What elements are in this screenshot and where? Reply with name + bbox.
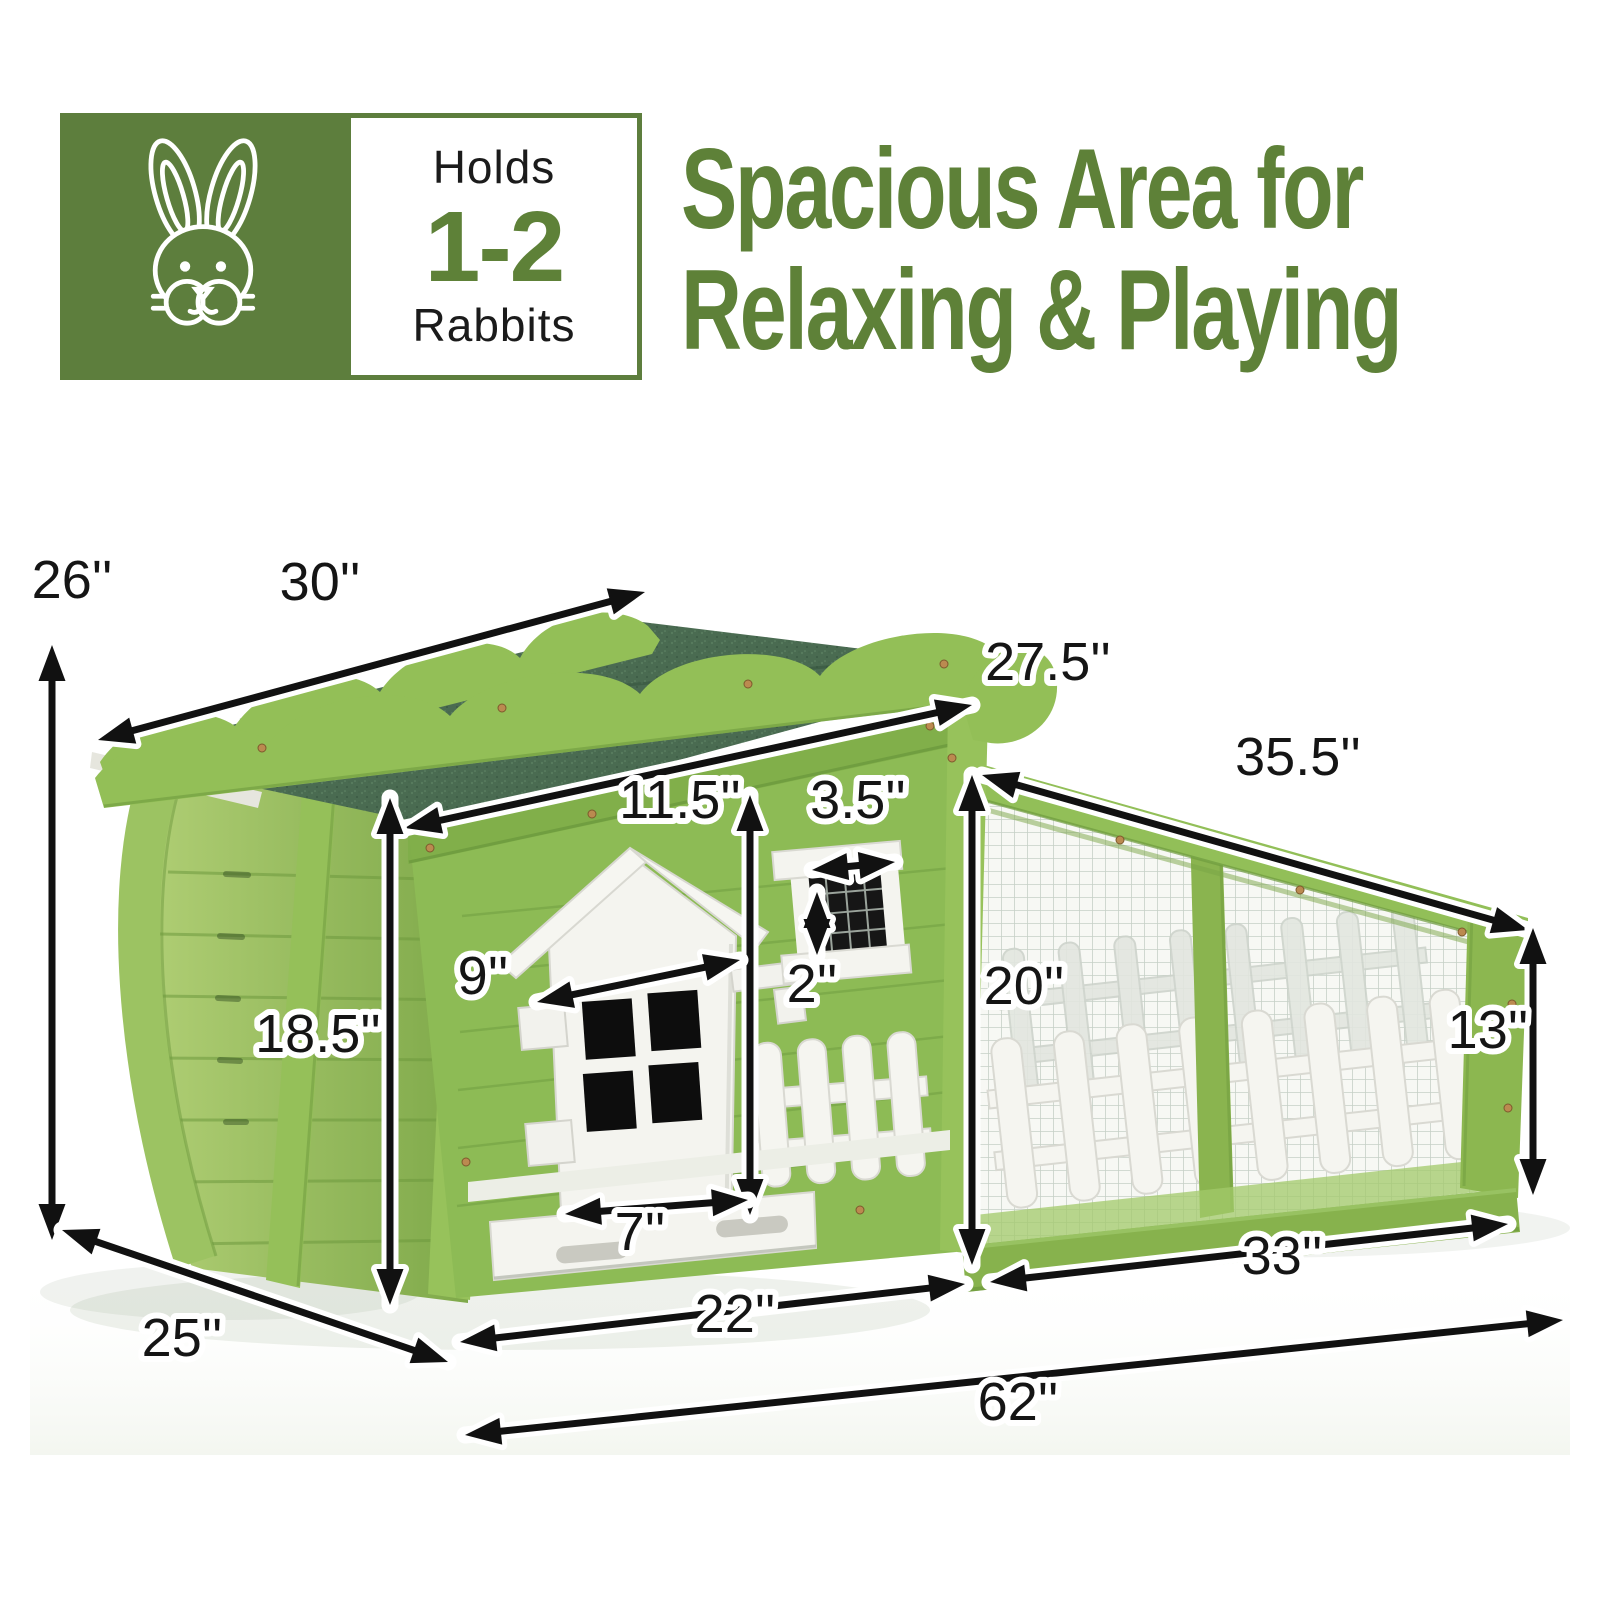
headline-line1: Spacious Area for — [681, 130, 1400, 251]
dimension-label-roof-width: 27.5'' — [985, 632, 1111, 692]
capacity-count: 1-2 — [425, 197, 564, 297]
capacity-line1: Holds — [433, 139, 556, 197]
dimension-label-house-depth: 25'' — [142, 1308, 223, 1368]
capacity-badge — [60, 113, 346, 380]
dimension-label-door-width-diagonal: 9'' — [458, 946, 509, 1006]
dimension-label-run-height-right: 13'' — [1448, 1000, 1529, 1060]
dimension-height-left: 26'' — [32, 550, 113, 1240]
rabbit-icon — [103, 129, 303, 364]
dimension-label-window-width: 3.5'' — [810, 770, 906, 830]
dimension-label-run-height-left: 20'' — [984, 956, 1065, 1016]
hutch-run — [962, 760, 1528, 1292]
headline: Spacious Area for Relaxing & Playing — [681, 130, 1400, 372]
capacity-card: Holds 1-2 Rabbits — [346, 113, 642, 380]
dimension-window-width: 3.5'' — [810, 770, 906, 880]
dimension-label-door-opening-height: 11.5'' — [619, 770, 741, 830]
headline-line2: Relaxing & Playing — [681, 251, 1400, 372]
dimension-label-run-roof-length: 35.5'' — [1235, 727, 1361, 787]
dimension-label-height-left: 26'' — [32, 550, 113, 610]
dimension-label-window-height: 2'' — [787, 954, 838, 1014]
dimension-label-roof-depth: 30'' — [280, 552, 361, 612]
capacity-line3: Rabbits — [413, 297, 576, 355]
dimension-label-house-base-width: 22'' — [695, 1284, 776, 1344]
dimension-label-house-height: 18.5'' — [255, 1004, 381, 1064]
dimension-label-total-length: 62'' — [978, 1372, 1059, 1432]
dimension-label-door-bottom-width: 7'' — [615, 1202, 666, 1262]
dimension-label-run-base-width: 33'' — [1242, 1226, 1323, 1286]
product-infographic: 26''30''27.5''35.5''11.5''3.5''2''9''20'… — [0, 0, 1600, 1600]
